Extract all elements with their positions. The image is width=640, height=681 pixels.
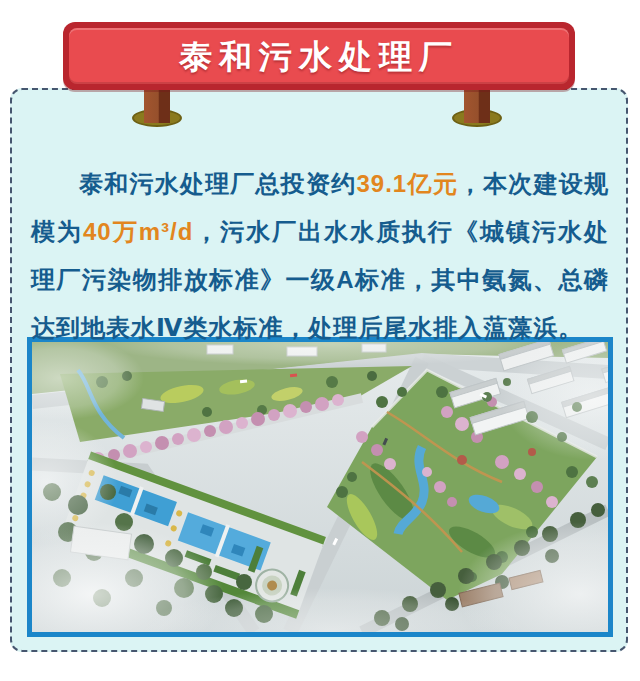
highlight-value: 40万m³/d	[83, 218, 193, 245]
sign-post-right	[464, 87, 490, 123]
body-paragraph: 泰和污水处理厂总投资约39.1亿元，本次建设规模为40万m³/d，污水厂出水水质…	[31, 160, 609, 352]
aerial-rendering-image	[32, 342, 608, 632]
infographic-page: 泰和污水处理厂 泰和污水处理厂总投资约39.1亿元，本次建设规模为40万m³/d…	[0, 0, 640, 681]
highlight-value: 39.1亿元	[356, 170, 457, 197]
title-signboard: 泰和污水处理厂	[63, 22, 575, 90]
body-text-segment: 泰和污水处理厂总投资约	[79, 170, 356, 197]
page-title: 泰和污水处理厂	[179, 40, 459, 73]
aerial-image-frame	[27, 337, 613, 637]
sign-post-left	[144, 87, 170, 123]
signboard-face: 泰和污水处理厂	[69, 28, 569, 84]
